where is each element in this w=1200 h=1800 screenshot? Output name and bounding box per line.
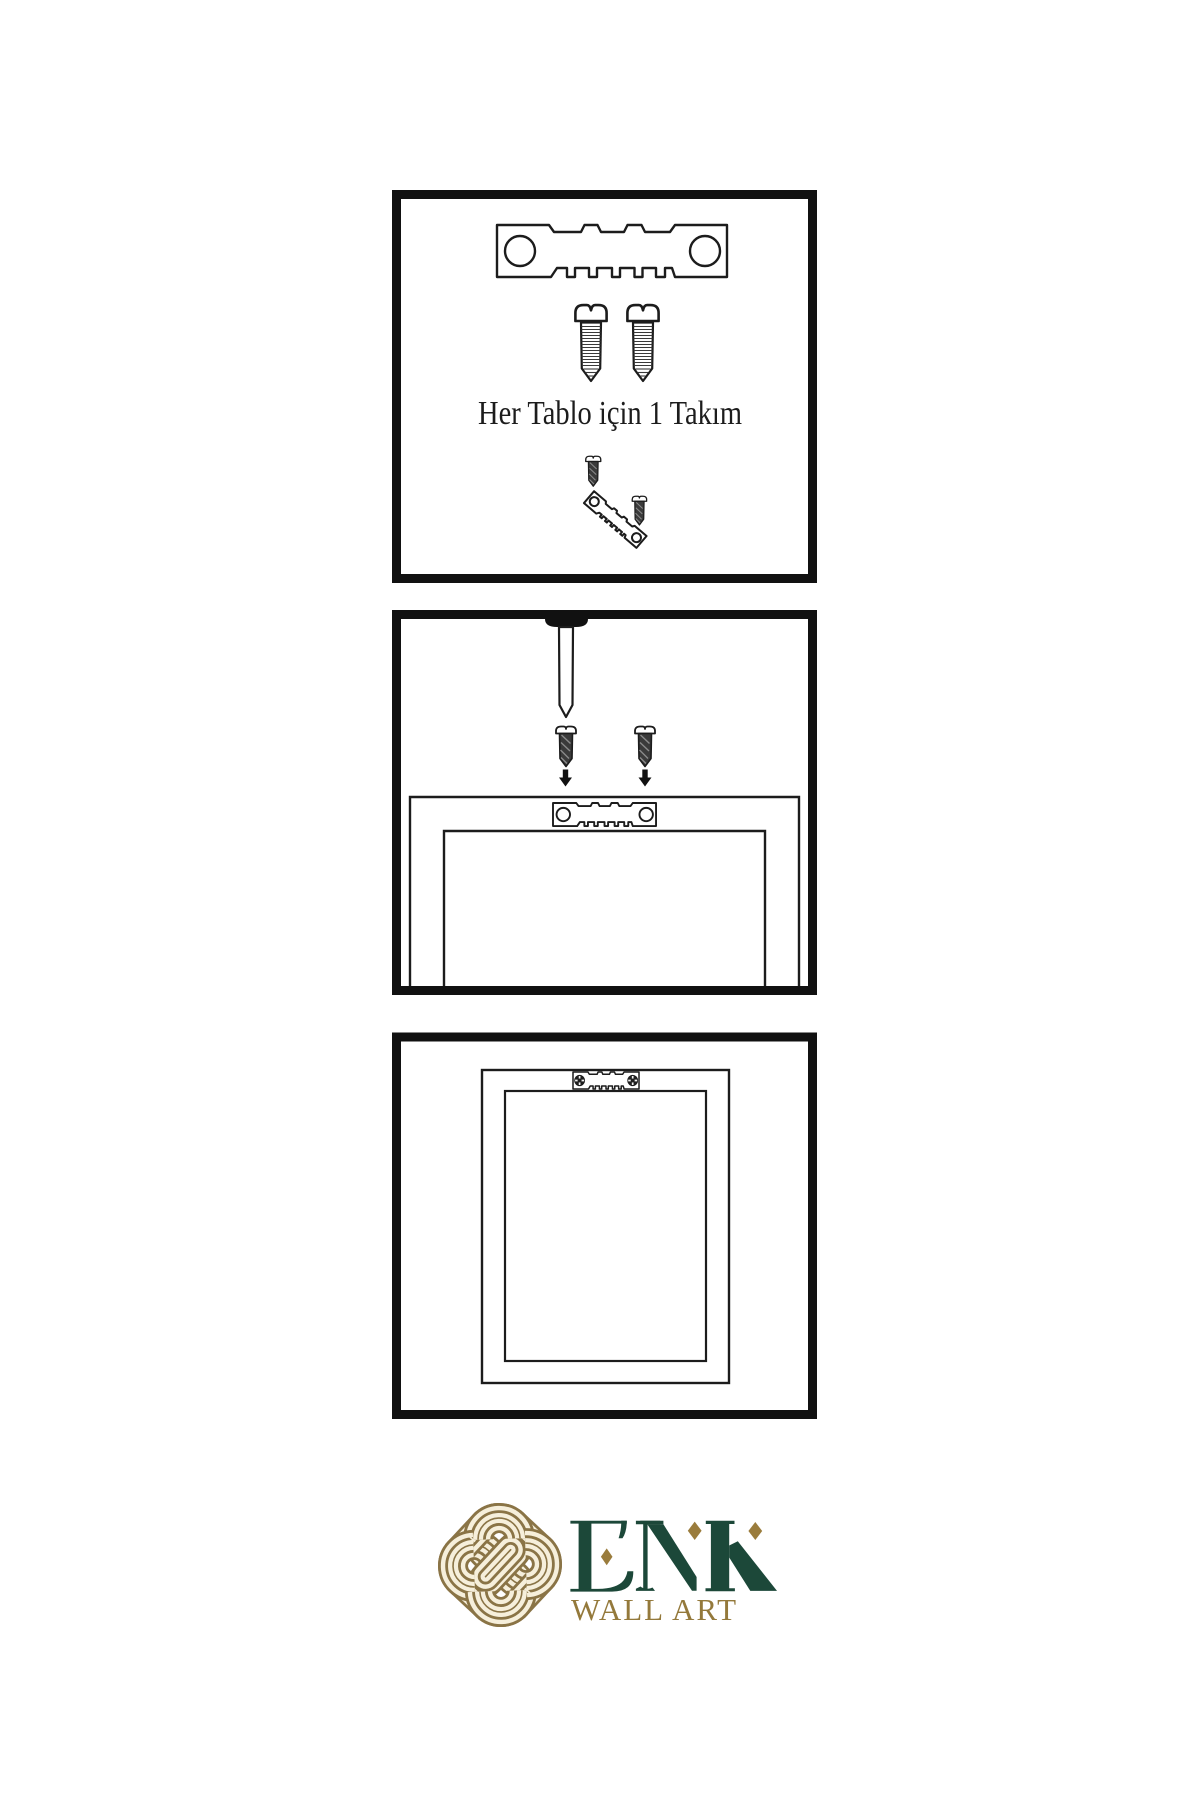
svg-text:WALL ART: WALL ART: [571, 1592, 738, 1627]
svg-text:Her Tablo için 1 Takım: Her Tablo için 1 Takım: [478, 395, 742, 432]
